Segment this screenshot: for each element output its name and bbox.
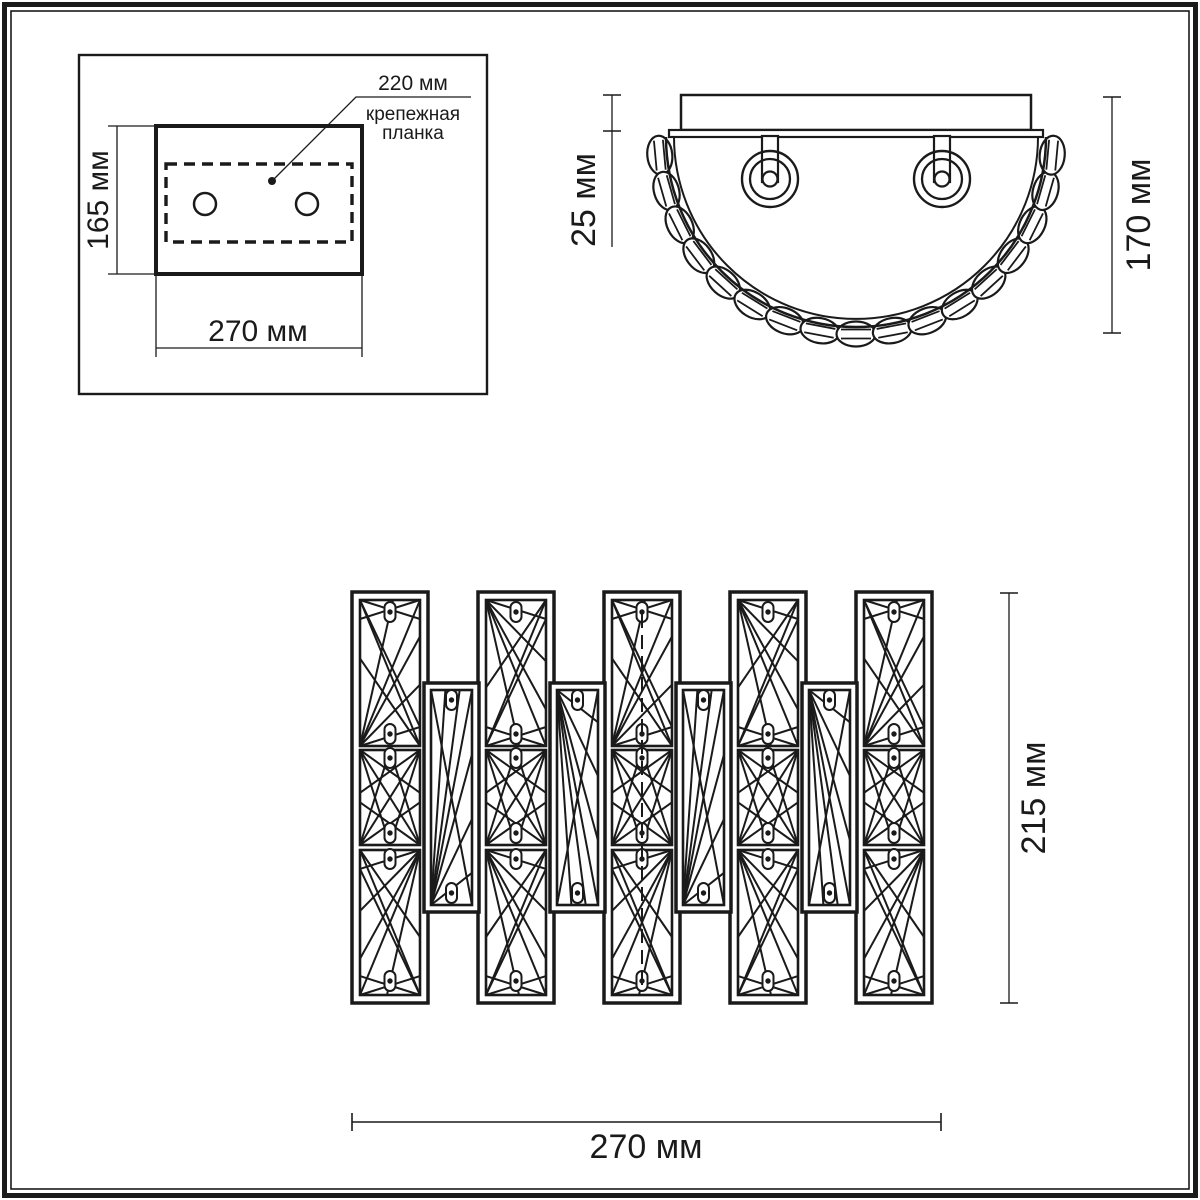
crystal-bar-short [550, 683, 605, 912]
crystal-bar-short [676, 683, 731, 912]
dimension-height-215: 215 мм [1000, 593, 1053, 1003]
crystal-bar-short [424, 683, 479, 912]
mounting-bar-rect [669, 130, 1043, 137]
total-depth-label: 170 мм [1120, 159, 1158, 272]
bowl-outer-arc [666, 137, 1046, 327]
dimension-plate-depth-25: 25 мм [565, 95, 621, 247]
bracket-caption-line1: крепежная [366, 104, 460, 125]
lamp-holder [742, 136, 798, 207]
width-label: 270 мм [208, 315, 308, 348]
bracket-caption-line2: планка [382, 123, 444, 144]
crystal-bar-tall [478, 592, 554, 1003]
height-label: 215 мм [1015, 742, 1053, 855]
crystal-bar-short [802, 683, 857, 912]
dimension-width-270: 270 мм [156, 274, 362, 357]
rim-bead [837, 322, 876, 347]
top-view: 25 мм 170 мм [565, 95, 1158, 347]
dimension-total-depth-170: 170 мм [1103, 97, 1158, 333]
mounting-plate-view: 220 мм крепежная планка 165 мм 270 мм [79, 55, 487, 394]
lamp-socket-center [935, 172, 950, 187]
technical-drawing-canvas: 220 мм крепежная планка 165 мм 270 мм 25… [0, 0, 1200, 1200]
lamp-socket-center [763, 172, 778, 187]
rim-beads [646, 135, 1067, 347]
plate-depth-label: 25 мм [565, 153, 603, 247]
lamp-holder [914, 136, 970, 207]
wall-plate-rect [681, 95, 1031, 130]
mounting-hole-left [194, 193, 216, 215]
front-view: 215 мм 270 мм [352, 592, 1053, 1166]
height-label: 165 мм [82, 150, 115, 250]
bracket-length-label: 220 мм [378, 72, 448, 95]
mounting-hole-right [296, 193, 318, 215]
crystal-bar-tall [856, 592, 932, 1003]
lamp-holders [742, 136, 970, 207]
width-label: 270 мм [590, 1128, 703, 1166]
backplate-rect [156, 126, 362, 274]
dimension-height-165: 165 мм [82, 126, 156, 274]
crystal-bar-tall [352, 592, 428, 1003]
drawing-page: 220 мм крепежная планка 165 мм 270 мм 25… [0, 0, 1200, 1200]
dimension-width-270: 270 мм [352, 1113, 941, 1166]
crystal-bar-tall [730, 592, 806, 1003]
